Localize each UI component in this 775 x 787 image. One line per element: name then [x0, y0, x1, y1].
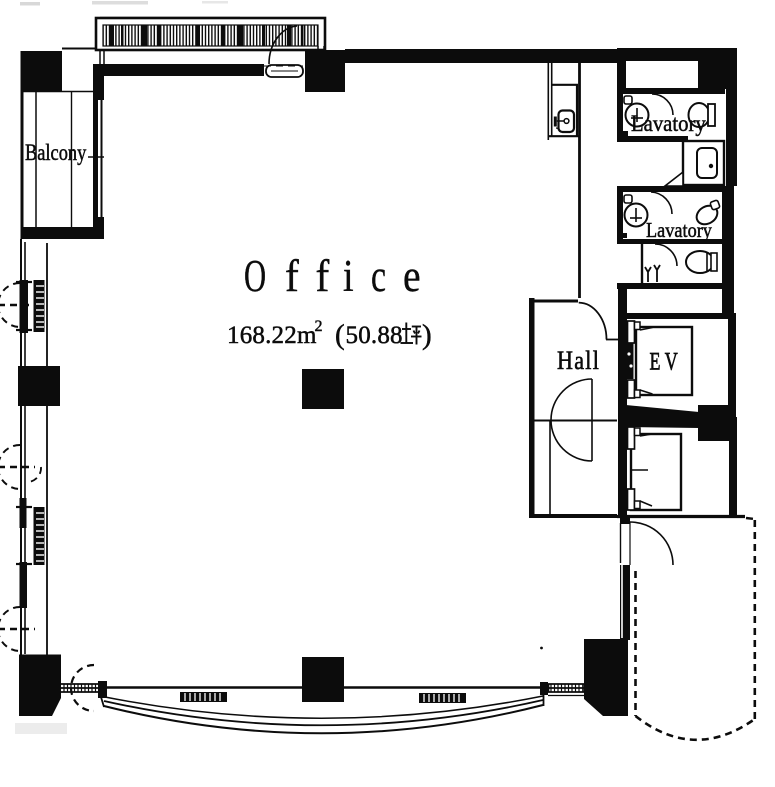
- svg-text:168.22m: 168.22m: [227, 322, 317, 349]
- svg-text:EV: EV: [650, 348, 683, 376]
- svg-text:i: i: [343, 252, 354, 302]
- svg-text:Lavatory: Lavatory: [631, 111, 706, 136]
- svg-text:): ): [422, 319, 432, 351]
- svg-text:Balcony: Balcony: [25, 139, 87, 166]
- svg-text:f: f: [285, 251, 299, 301]
- svg-text:(: (: [335, 319, 345, 351]
- svg-text:e: e: [403, 252, 421, 302]
- svg-text:f: f: [316, 251, 330, 301]
- svg-text:Lavatory: Lavatory: [646, 219, 712, 242]
- svg-text:Hall: Hall: [557, 347, 600, 375]
- svg-text:O: O: [244, 252, 266, 301]
- svg-text:2: 2: [315, 318, 323, 335]
- svg-text:c: c: [371, 251, 386, 301]
- svg-text:50.88: 50.88: [346, 322, 403, 349]
